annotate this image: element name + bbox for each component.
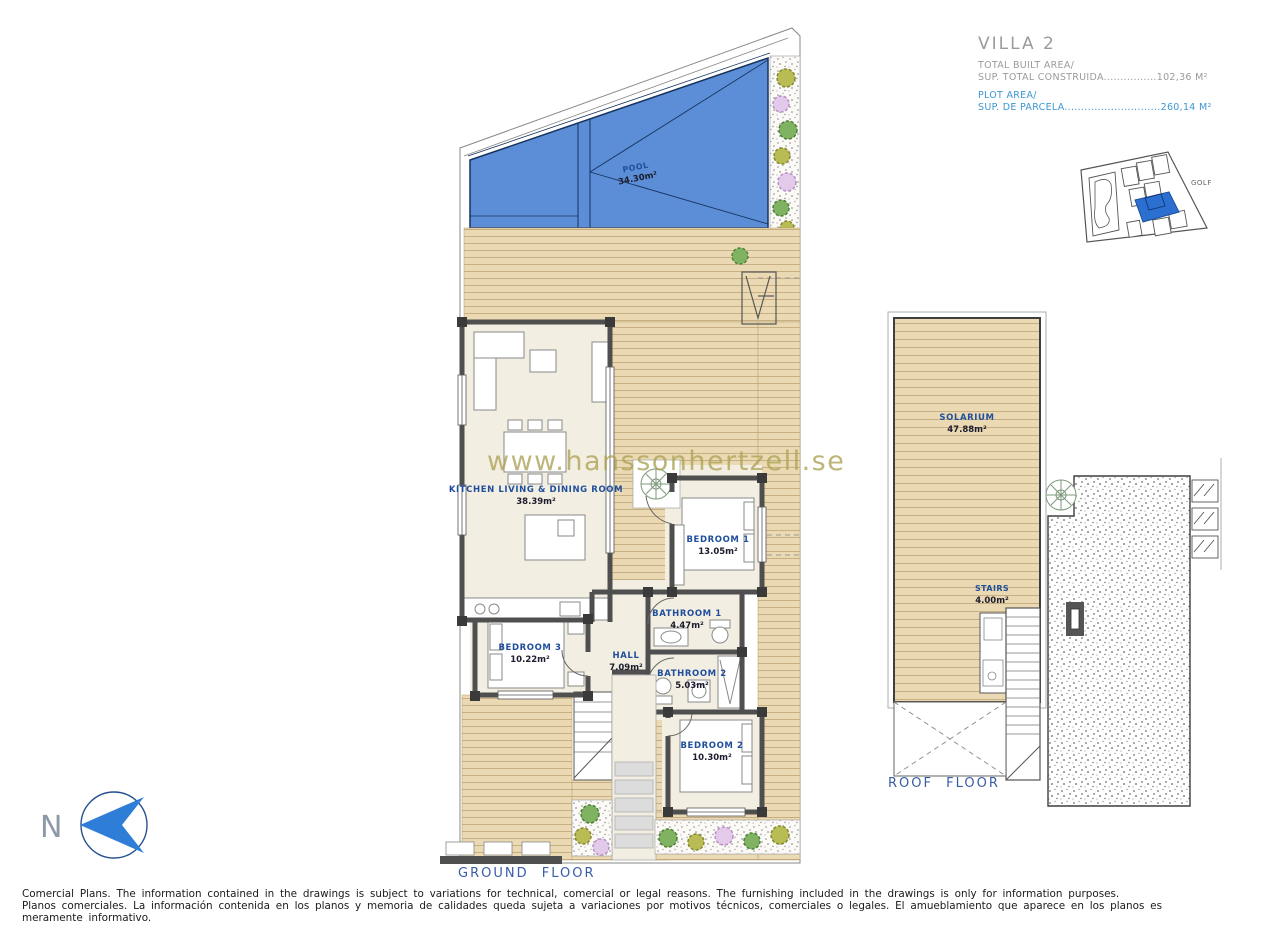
bedroom3-label: BEDROOM 3 [498, 643, 561, 653]
interior-stairs [574, 692, 612, 780]
gravel-roof [1048, 476, 1190, 806]
kitchen-area: 38.39m² [516, 497, 556, 507]
bedroom2-area: 10.30m² [692, 753, 732, 763]
stairs-area: 4.00m² [975, 596, 1009, 606]
pool: POOL 34.30m² [468, 53, 770, 228]
roof-floor-plan: SOLARIUM 47.88m² [880, 308, 1230, 808]
plant-fan-ornament-roof [1046, 480, 1076, 510]
bedroom2-label: BEDROOM 2 [680, 741, 743, 751]
site-location-map: GOLF [1075, 148, 1225, 253]
site-map-golf-label: GOLF [1191, 179, 1212, 187]
bedroom1-label: BEDROOM 1 [686, 535, 749, 545]
stairs-label: STAIRS [975, 584, 1009, 593]
floor-plan-sheet: VILLA 2 TOTAL BUILT AREA/ SUP. TOTAL CON… [0, 0, 1280, 933]
ground-floor-plan: POOL 34.30m² [440, 20, 820, 865]
plot-area-label: PLOT AREA/ [978, 90, 1238, 102]
disclaimer: Comercial Plans. The information contain… [22, 888, 1202, 925]
disclaimer-line-en: Comercial Plans. The information contain… [22, 888, 1202, 900]
north-arrow: N [38, 785, 178, 869]
garden-strip-top [770, 56, 800, 238]
watermark: www.hanssonhertzell.se [487, 446, 845, 477]
solarium-area: 47.88m² [947, 425, 987, 435]
bathroom2-area: 5.03m² [675, 681, 709, 691]
solarium-label: SOLARIUM [939, 413, 994, 423]
villa-title: VILLA 2 [978, 34, 1238, 54]
roof-equipment [1192, 458, 1221, 570]
deck-plant [732, 248, 748, 264]
title-block: VILLA 2 TOTAL BUILT AREA/ SUP. TOTAL CON… [978, 34, 1238, 113]
bathroom1-area: 4.47m² [670, 621, 704, 631]
hall-label: HALL [613, 651, 640, 661]
bedroom1-area: 13.05m² [698, 547, 738, 557]
built-area-value: SUP. TOTAL CONSTRUIDA................102… [978, 72, 1238, 84]
disclaimer-line-es: Planos comerciales. La información conte… [22, 900, 1202, 924]
bathroom2-label: BATHROOM 2 [657, 669, 727, 679]
plot-area-value: SUP. DE PARCELA.........................… [978, 102, 1238, 114]
built-area-label: TOTAL BUILT AREA/ [978, 60, 1238, 72]
hall-area: 7.09m² [609, 663, 643, 673]
pergola [894, 702, 1006, 776]
north-arrow-icon [80, 797, 144, 853]
kitchen-label: KITCHEN LIVING & DINING ROOM [449, 485, 623, 495]
bedroom3-area: 10.22m² [510, 655, 550, 665]
ground-floor-caption: GROUND FLOOR [458, 866, 595, 881]
bathroom1-label: BATHROOM 1 [652, 609, 722, 619]
entrance-walkway [612, 675, 656, 860]
roof-floor-caption: ROOF FLOOR [888, 776, 1000, 791]
north-label: N [40, 810, 62, 845]
